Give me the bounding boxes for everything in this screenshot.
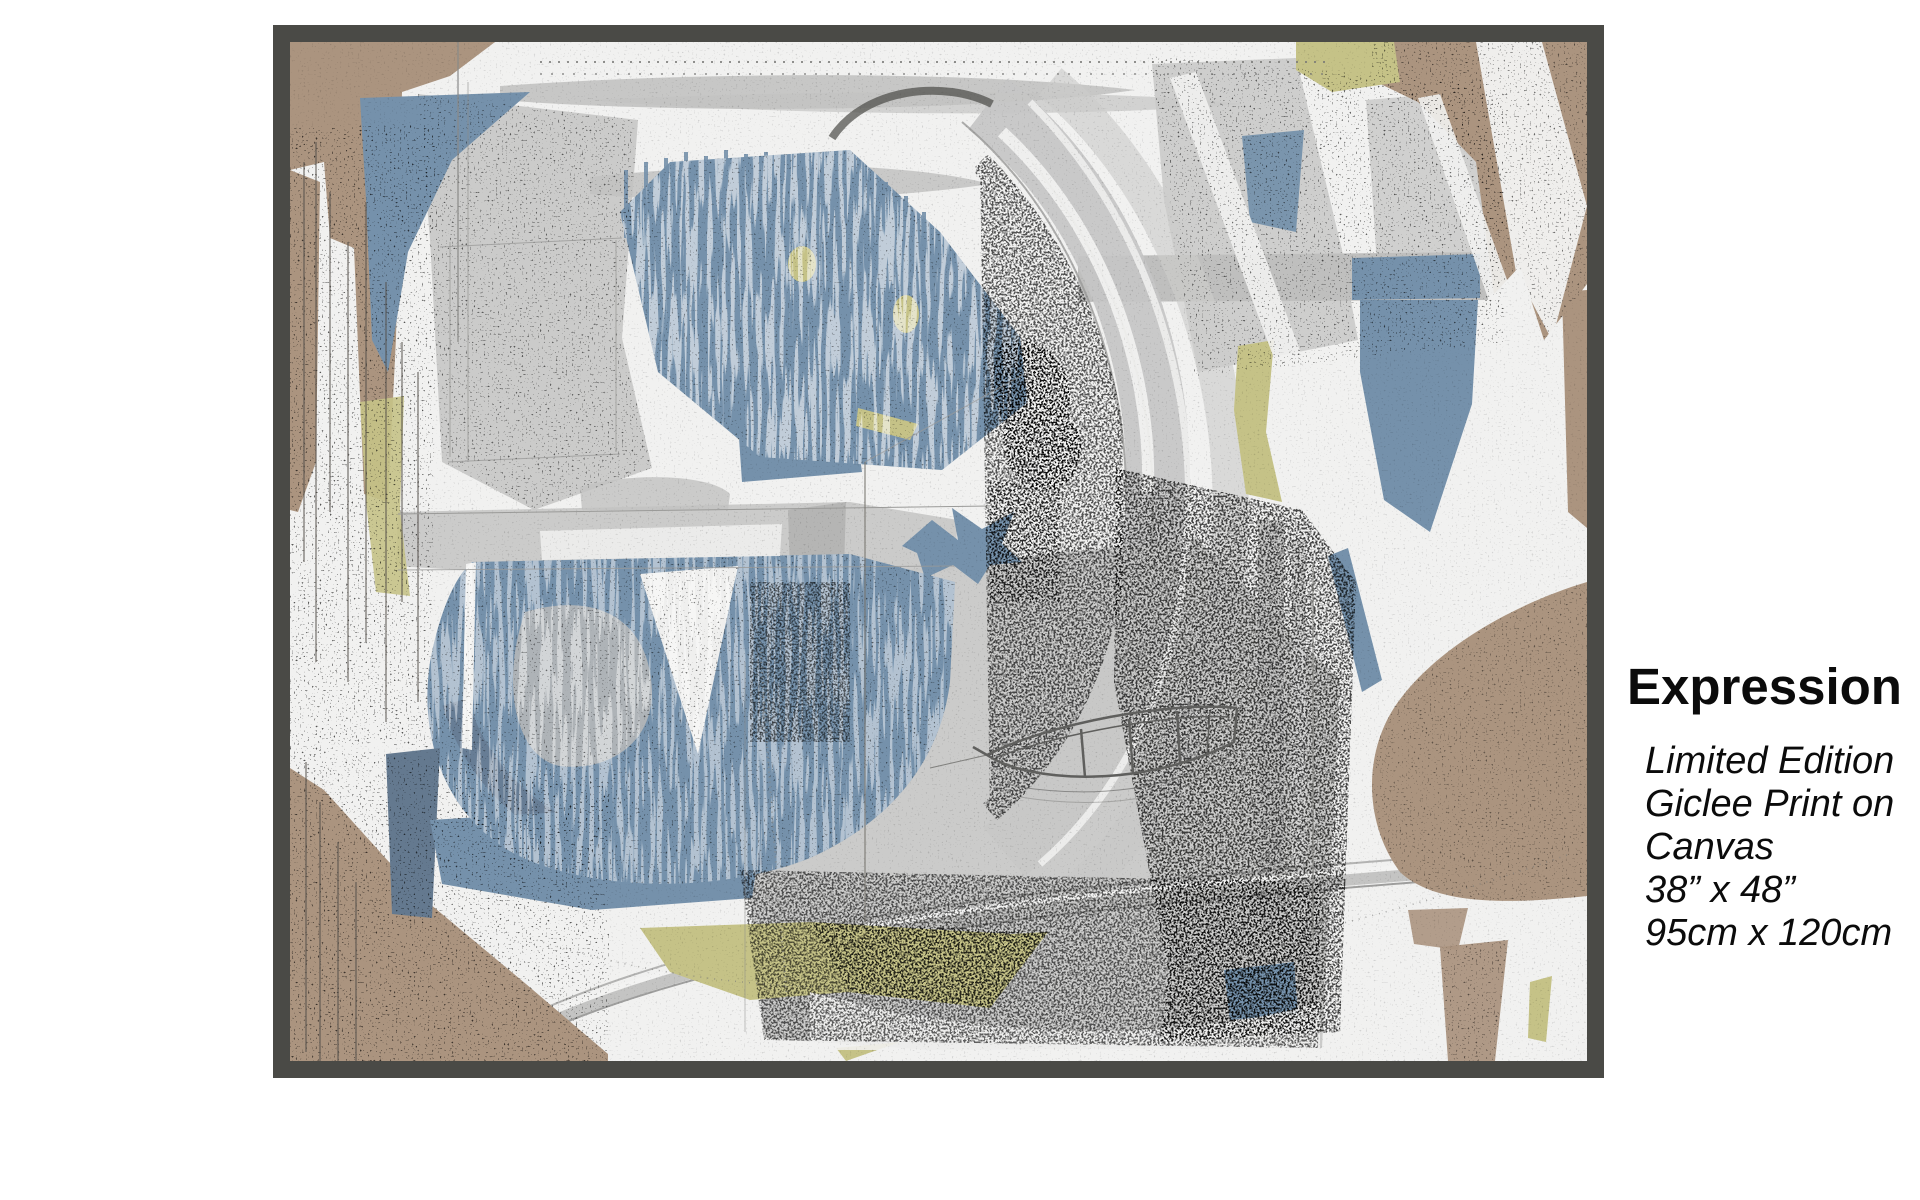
- artwork-frame: [273, 25, 1604, 1078]
- texture-speckles: [290, 42, 1587, 1061]
- artwork-image: [290, 42, 1587, 1061]
- detail-line: Limited Edition: [1645, 740, 1902, 783]
- page: { "artwork": { "palette": { "frame": "#4…: [0, 0, 1920, 1200]
- caption: Expression Limited Edition Giclee Print …: [1627, 661, 1902, 955]
- detail-line: 38” x 48”: [1645, 869, 1902, 912]
- detail-line: Giclee Print on: [1645, 783, 1902, 826]
- artwork-title: Expression: [1627, 661, 1902, 712]
- detail-line: Canvas: [1645, 826, 1902, 869]
- artwork-details: Limited Edition Giclee Print on Canvas 3…: [1645, 740, 1902, 955]
- detail-line: 95cm x 120cm: [1645, 912, 1902, 955]
